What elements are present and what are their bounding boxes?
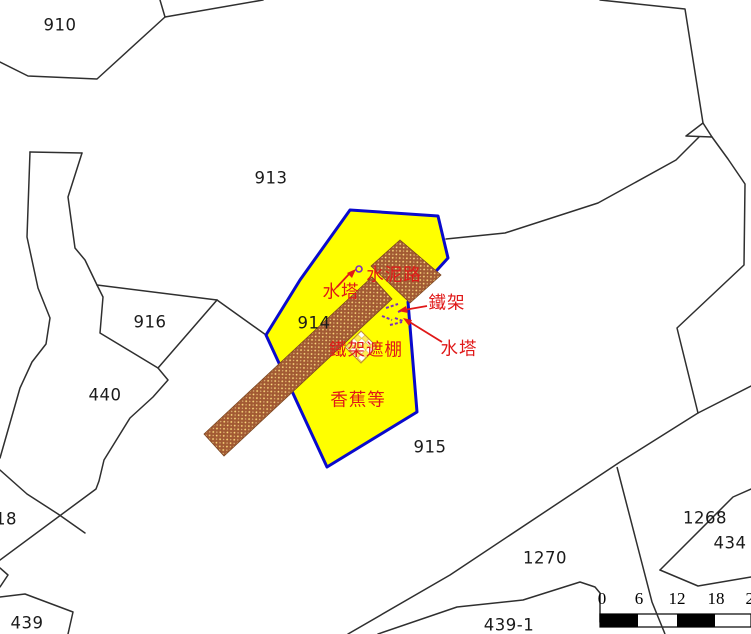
scale-tick-24: 24 [746,589,751,609]
parcel-label-916: 916 [134,313,167,332]
scale-bar [600,614,751,627]
parcel-label-914: 914 [298,314,331,333]
parcel-label-18: 18 [0,510,17,529]
parcel-label-1270: 1270 [523,549,567,568]
annotation-iron-frame: 鐵架 [429,290,466,315]
annotation-water-tower-2: 水塔 [441,336,478,361]
parcel-label-439: 439 [11,614,44,633]
parcel-label-910: 910 [44,16,77,35]
annotation-water-tower-1: 水塔 [323,279,360,304]
map-canvas[interactable] [0,0,751,634]
cadastral-map-view: 910 913 916 914 440 915 1270 1268 434 43… [0,0,751,634]
parcel-label-439-1: 439-1 [484,616,534,634]
parcel-label-913: 913 [255,169,288,188]
parcel-label-434: 434 [714,534,747,553]
annotation-bananas: 香蕉等 [330,387,386,412]
annotation-cement-road: 水泥路 [366,262,422,287]
parcel-label-440: 440 [89,386,122,405]
scale-tick-6: 6 [635,589,644,609]
scale-tick-12: 12 [669,589,686,609]
parcel-label-1268: 1268 [683,509,727,528]
annotation-iron-frame-canopy: 鐵架遮棚 [329,337,403,362]
scale-tick-0: 0 [598,589,607,609]
parcel-label-915: 915 [414,438,447,457]
scale-tick-18: 18 [708,589,725,609]
